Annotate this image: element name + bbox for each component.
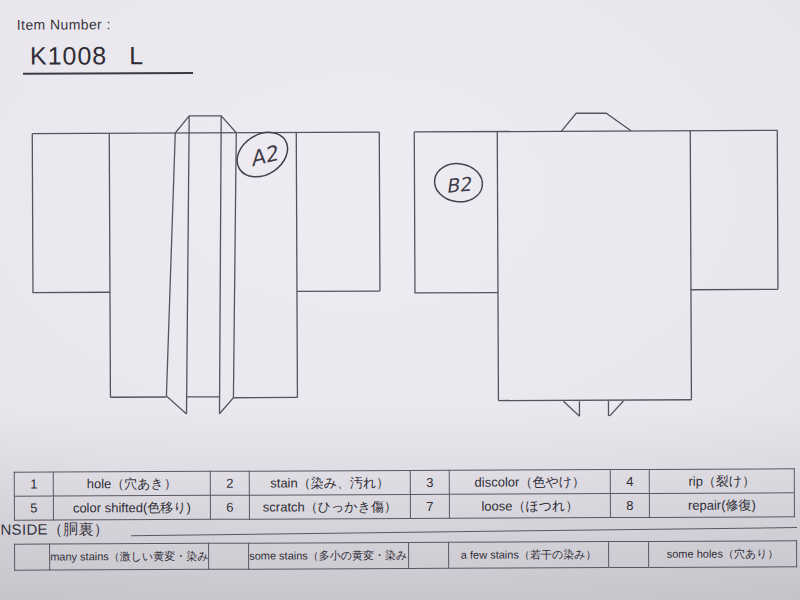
inside-table-row: many stains（激しい黄変・染み） some stains（多小の黄変・… xyxy=(15,541,797,570)
annotation-b2-text: B2 xyxy=(445,172,474,197)
defect-number-cell: 8 xyxy=(610,493,649,517)
defect-label-cell: scratch（ひっかき傷） xyxy=(249,494,410,519)
inside-label-cell: many stains（激しい黄変・染み） xyxy=(50,543,209,570)
defect-table-row: 1 hole（穴あき） 2 stain（染み、汚れ） 3 discolor（色や… xyxy=(14,469,794,496)
kimono-back-diagram xyxy=(414,112,778,417)
annotation-a2-text: A2 xyxy=(247,141,281,171)
defect-label-cell: color shifted(色移り) xyxy=(53,495,210,520)
inside-label-cell: some stains（多小の黄変・染み） xyxy=(249,542,409,569)
defect-label-cell: hole（穴あき） xyxy=(53,471,210,496)
inside-section-title: INSIDE（胴裏） xyxy=(0,520,109,539)
defect-number-cell: 3 xyxy=(410,470,449,494)
defect-number-cell: 2 xyxy=(210,471,249,495)
kimono-front-diagram xyxy=(32,115,380,415)
inside-checkbox-cell xyxy=(609,541,649,567)
defect-table-row: 5 color shifted(色移り) 6 scratch（ひっかき傷） 7 … xyxy=(14,493,794,520)
defect-number-cell: 7 xyxy=(410,494,449,518)
defect-label-cell: repair(修復) xyxy=(649,493,794,518)
form-content: Item Number : K1008L xyxy=(0,0,800,600)
defect-label-cell: rip（裂け） xyxy=(649,469,794,494)
inside-checkbox-cell xyxy=(409,542,449,568)
inside-label-cell: some holes（穴あり） xyxy=(649,541,797,568)
defect-number-cell: 5 xyxy=(14,496,53,520)
photographed-form: Item Number : K1008L xyxy=(0,0,800,600)
inside-condition-table: many stains（激しい黄変・染み） some stains（多小の黄変・… xyxy=(14,540,797,570)
inside-label-cell: a few stains（若干の染み） xyxy=(449,542,609,569)
defect-number-cell: 6 xyxy=(210,495,249,519)
annotation-b2: B2 xyxy=(432,160,485,205)
defect-label-cell: loose（ほつれ） xyxy=(449,494,610,519)
defect-number-cell: 1 xyxy=(14,472,53,496)
defect-code-table: 1 hole（穴あき） 2 stain（染み、汚れ） 3 discolor（色や… xyxy=(14,468,795,520)
defect-label-cell: stain（染み、汚れ） xyxy=(249,470,410,495)
defect-label-cell: discolor（色やけ） xyxy=(449,470,610,495)
inside-checkbox-cell xyxy=(15,544,50,570)
defect-number-cell: 4 xyxy=(610,469,649,493)
inside-checkbox-cell xyxy=(209,543,249,569)
